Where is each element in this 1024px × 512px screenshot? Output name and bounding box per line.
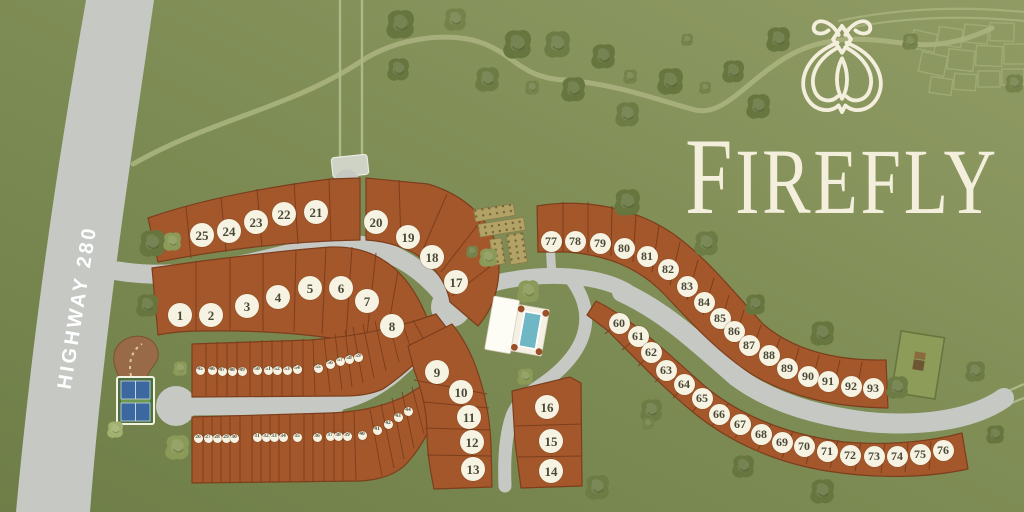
- lot-marker-73[interactable]: 73: [864, 446, 885, 467]
- lot-marker-44[interactable]: 44: [404, 407, 413, 416]
- lot-marker-36[interactable]: 36: [313, 433, 322, 442]
- lot-marker-70[interactable]: 70: [794, 436, 815, 457]
- lot-marker-15[interactable]: 15: [539, 429, 563, 453]
- lot-marker-11[interactable]: 11: [457, 405, 481, 429]
- lot-marker-56[interactable]: 56: [326, 360, 335, 369]
- lot-marker-69[interactable]: 69: [772, 432, 793, 453]
- lot-marker-41[interactable]: 41: [373, 426, 382, 435]
- lot-marker-53[interactable]: 53: [283, 366, 292, 375]
- lot-marker-10[interactable]: 10: [449, 380, 473, 404]
- lot-marker-46[interactable]: 46: [208, 366, 217, 375]
- lot-marker-49[interactable]: 49: [238, 367, 247, 376]
- lot-marker-19[interactable]: 19: [396, 225, 420, 249]
- lot-marker-66[interactable]: 66: [709, 404, 730, 425]
- lot-marker-38[interactable]: 38: [334, 432, 343, 441]
- lot-marker-45[interactable]: 45: [196, 366, 205, 375]
- lot-marker-51[interactable]: 51: [264, 366, 273, 375]
- lot-marker-64[interactable]: 64: [674, 374, 695, 395]
- lot-marker-77[interactable]: 77: [541, 231, 562, 252]
- lot-marker-21[interactable]: 21: [304, 200, 328, 224]
- lot-marker-34[interactable]: 34: [279, 433, 288, 442]
- lot-marker-78[interactable]: 78: [565, 231, 586, 252]
- lot-marker-57[interactable]: 57: [336, 357, 345, 366]
- lot-marker-74[interactable]: 74: [887, 446, 908, 467]
- lot-marker-24[interactable]: 24: [217, 219, 241, 243]
- lot-marker-81[interactable]: 81: [637, 246, 658, 267]
- lot-marker-3[interactable]: 3: [235, 294, 259, 318]
- lot-marker-65[interactable]: 65: [692, 388, 713, 409]
- lot-marker-89[interactable]: 89: [777, 358, 798, 379]
- lot-marker-30[interactable]: 30: [230, 434, 239, 443]
- lot-marker-82[interactable]: 82: [658, 259, 679, 280]
- lot-marker-8[interactable]: 8: [380, 314, 404, 338]
- lot-marker-72[interactable]: 72: [840, 445, 861, 466]
- lot-marker-25[interactable]: 25: [190, 223, 214, 247]
- lot-marker-40[interactable]: 40: [358, 431, 367, 440]
- lot-marker-16[interactable]: 16: [535, 395, 559, 419]
- lot-marker-5[interactable]: 5: [298, 276, 322, 300]
- lot-marker-12[interactable]: 12: [460, 430, 484, 454]
- lot-marker-13[interactable]: 13: [461, 457, 485, 481]
- lot-marker-47[interactable]: 47: [218, 367, 227, 376]
- lot-marker-71[interactable]: 71: [817, 441, 838, 462]
- lot-marker-14[interactable]: 14: [539, 459, 563, 483]
- lot-marker-55[interactable]: 55: [314, 364, 323, 373]
- lot-marker-42[interactable]: 42: [384, 420, 393, 429]
- lot-marker-1[interactable]: 1: [168, 303, 192, 327]
- lot-marker-54[interactable]: 54: [293, 365, 302, 374]
- lot-marker-28[interactable]: 28: [213, 434, 222, 443]
- lot-marker-17[interactable]: 17: [444, 270, 468, 294]
- lot-marker-52[interactable]: 52: [273, 366, 282, 375]
- lot-marker-31[interactable]: 31: [253, 433, 262, 442]
- lot-marker-20[interactable]: 20: [364, 210, 388, 234]
- lot-marker-68[interactable]: 68: [751, 424, 772, 445]
- lot-marker-48[interactable]: 48: [228, 367, 237, 376]
- lot-marker-79[interactable]: 79: [590, 233, 611, 254]
- lot-marker-7[interactable]: 7: [355, 289, 379, 313]
- lot-marker-23[interactable]: 23: [244, 210, 268, 234]
- lot-marker-18[interactable]: 18: [420, 245, 444, 269]
- lot-marker-60[interactable]: 60: [609, 313, 630, 334]
- lot-marker-22[interactable]: 22: [272, 202, 296, 226]
- site-plan-map: 1234567891011121314151617181920212223242…: [0, 0, 1024, 512]
- lot-marker-67[interactable]: 67: [730, 414, 751, 435]
- lot-marker-43[interactable]: 43: [394, 413, 403, 422]
- lot-marker-2[interactable]: 2: [199, 303, 223, 327]
- lot-marker-33[interactable]: 33: [270, 433, 279, 442]
- lot-marker-6[interactable]: 6: [329, 276, 353, 300]
- lot-marker-75[interactable]: 75: [910, 444, 931, 465]
- lot-marker-27[interactable]: 27: [204, 434, 213, 443]
- lot-marker-59[interactable]: 59: [354, 353, 363, 362]
- lot-marker-83[interactable]: 83: [677, 276, 698, 297]
- lot-marker-58[interactable]: 58: [345, 355, 354, 364]
- lot-marker-76[interactable]: 76: [933, 440, 954, 461]
- lot-markers-layer: 1234567891011121314151617181920212223242…: [0, 0, 1024, 512]
- lot-marker-91[interactable]: 91: [818, 371, 839, 392]
- lot-marker-88[interactable]: 88: [759, 345, 780, 366]
- lot-marker-9[interactable]: 9: [425, 360, 449, 384]
- lot-marker-26[interactable]: 26: [194, 434, 203, 443]
- lot-marker-90[interactable]: 90: [798, 366, 819, 387]
- lot-marker-50[interactable]: 50: [253, 366, 262, 375]
- lot-marker-87[interactable]: 87: [739, 335, 760, 356]
- lot-marker-63[interactable]: 63: [656, 360, 677, 381]
- lot-marker-93[interactable]: 93: [863, 378, 884, 399]
- lot-marker-39[interactable]: 39: [343, 432, 352, 441]
- lot-marker-80[interactable]: 80: [614, 238, 635, 259]
- lot-marker-84[interactable]: 84: [694, 292, 715, 313]
- lot-marker-4[interactable]: 4: [266, 285, 290, 309]
- lot-marker-62[interactable]: 62: [641, 342, 662, 363]
- lot-marker-35[interactable]: 35: [293, 433, 302, 442]
- lot-marker-92[interactable]: 92: [841, 376, 862, 397]
